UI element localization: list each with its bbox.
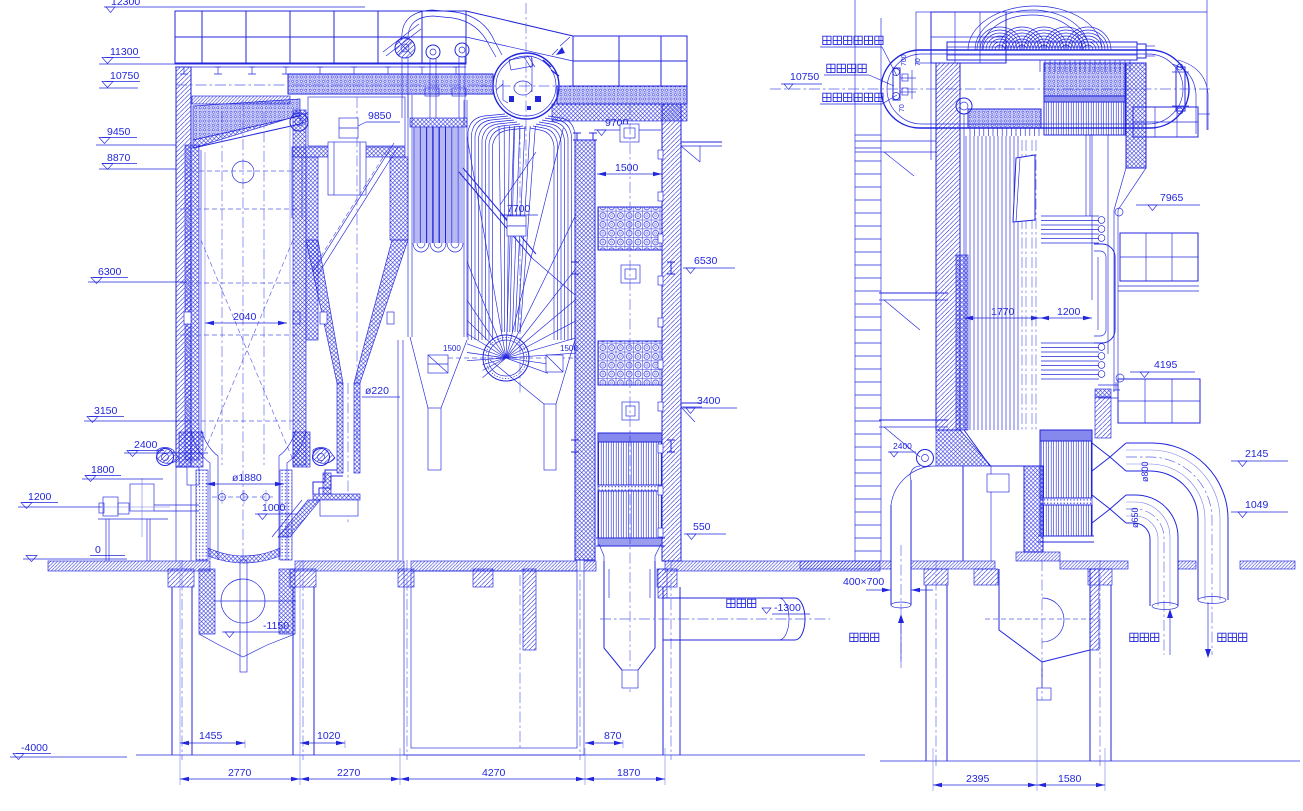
svg-text:870: 870	[604, 730, 622, 742]
svg-text:1200: 1200	[28, 491, 52, 503]
svg-text:1020: 1020	[317, 730, 341, 742]
svg-text:ø220: ø220	[365, 385, 389, 397]
svg-text:1049: 1049	[1245, 499, 1269, 511]
svg-text:11300: 11300	[110, 46, 139, 58]
svg-text:6300: 6300	[98, 266, 122, 278]
svg-text:400×700: 400×700	[843, 576, 884, 588]
svg-text:ø800: ø800	[1140, 461, 1150, 482]
svg-text:1580: 1580	[1058, 773, 1082, 785]
svg-text:2400: 2400	[134, 439, 158, 451]
svg-text:1500: 1500	[443, 344, 461, 353]
svg-text:1500: 1500	[615, 162, 639, 174]
svg-text:8870: 8870	[107, 152, 131, 164]
svg-text:6530: 6530	[694, 255, 718, 267]
svg-text:1200: 1200	[1057, 306, 1081, 318]
svg-text:7965: 7965	[1160, 192, 1184, 204]
svg-text:550: 550	[693, 521, 711, 533]
svg-text:1770: 1770	[991, 306, 1015, 318]
svg-text:70: 70	[899, 104, 906, 112]
svg-text:7700: 7700	[507, 203, 531, 215]
svg-text:ø1880: ø1880	[232, 472, 262, 484]
svg-text:10750: 10750	[790, 71, 819, 83]
svg-text:9850: 9850	[368, 110, 392, 122]
svg-text:4195: 4195	[1154, 359, 1178, 371]
svg-text:1455: 1455	[199, 730, 223, 742]
svg-text:0: 0	[95, 544, 101, 556]
svg-text:-4000: -4000	[21, 742, 48, 754]
svg-text:9450: 9450	[107, 126, 131, 138]
svg-text:4270: 4270	[482, 767, 506, 779]
svg-text:1870: 1870	[617, 767, 641, 779]
svg-text:2145: 2145	[1245, 448, 1269, 460]
svg-text:10750: 10750	[110, 70, 139, 82]
svg-text:2395: 2395	[966, 773, 990, 785]
svg-text:2400: 2400	[893, 441, 912, 451]
svg-text:ø650: ø650	[1130, 507, 1140, 528]
svg-text:2270: 2270	[337, 767, 361, 779]
svg-text:1800: 1800	[91, 464, 115, 476]
svg-text:3400: 3400	[697, 395, 721, 407]
svg-text:-1150: -1150	[263, 620, 289, 632]
svg-text:-1300: -1300	[774, 602, 801, 614]
svg-text:2040: 2040	[233, 311, 257, 323]
svg-text:1000: 1000	[262, 502, 286, 514]
svg-text:2770: 2770	[228, 767, 252, 779]
svg-text:3150: 3150	[94, 405, 118, 417]
